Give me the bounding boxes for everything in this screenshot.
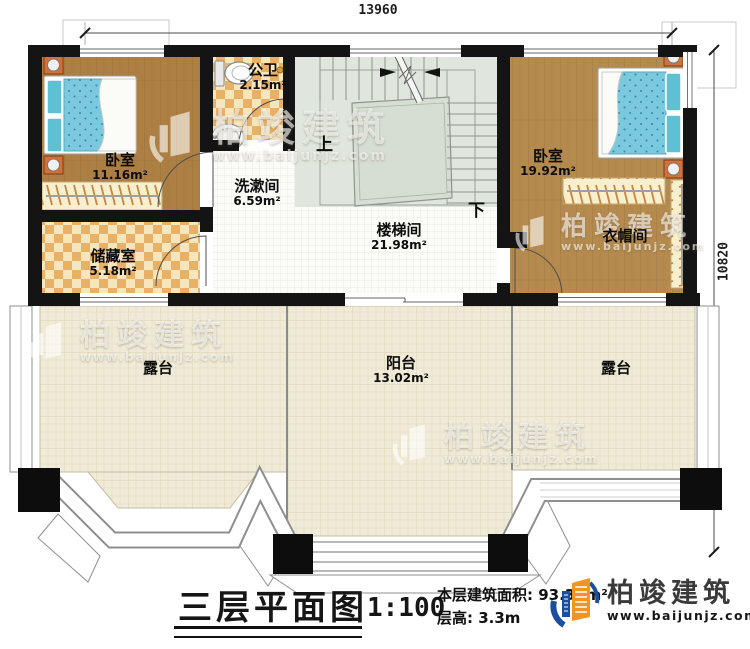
wardrobe-left-bedroom: [42, 182, 162, 210]
floorplan-page: 柏竣建筑 www.baijunjz.com 柏竣建筑 www.baijunjz.…: [0, 0, 750, 649]
room-label-washroom: 洗漱间 6.59m²: [233, 178, 280, 209]
page-title: 三层平面图: [178, 580, 368, 629]
room-label-terrace-right: 露台: [601, 360, 631, 377]
room-label-bedroom-right: 卧室 19.92m²: [520, 148, 576, 179]
room-label-storage: 储藏室 5.18m²: [89, 248, 136, 279]
dimension-right: 10820: [717, 234, 732, 290]
dimension-top: 13960: [338, 3, 418, 18]
room-label-cloakroom: 衣帽间: [602, 228, 647, 245]
room-label-terrace-left: 露台: [143, 360, 173, 377]
company-logo-icon: [550, 573, 600, 629]
bed-right: [598, 48, 684, 178]
room-label-stairwell: 楼梯间 21.98m²: [371, 222, 427, 253]
company-name: 柏竣建筑: [607, 580, 750, 607]
room-label-balcony: 阳台 13.02m²: [373, 355, 429, 386]
floorplan-drawing: [0, 0, 750, 649]
plan-scale: 1:100: [367, 593, 445, 623]
sliding-door: [345, 293, 463, 306]
title-underline: [174, 626, 362, 638]
stairs-down-label: 下: [468, 196, 485, 221]
room-label-bedroom-left: 卧室 11.16m²: [92, 152, 148, 183]
company-url: www.baijunjz.com: [607, 610, 750, 623]
company-logo: 柏竣建筑 www.baijunjz.com: [550, 573, 750, 629]
stairs-up-label: 上: [316, 130, 333, 155]
room-label-bathroom: 公卫 2.15m²: [239, 62, 286, 93]
